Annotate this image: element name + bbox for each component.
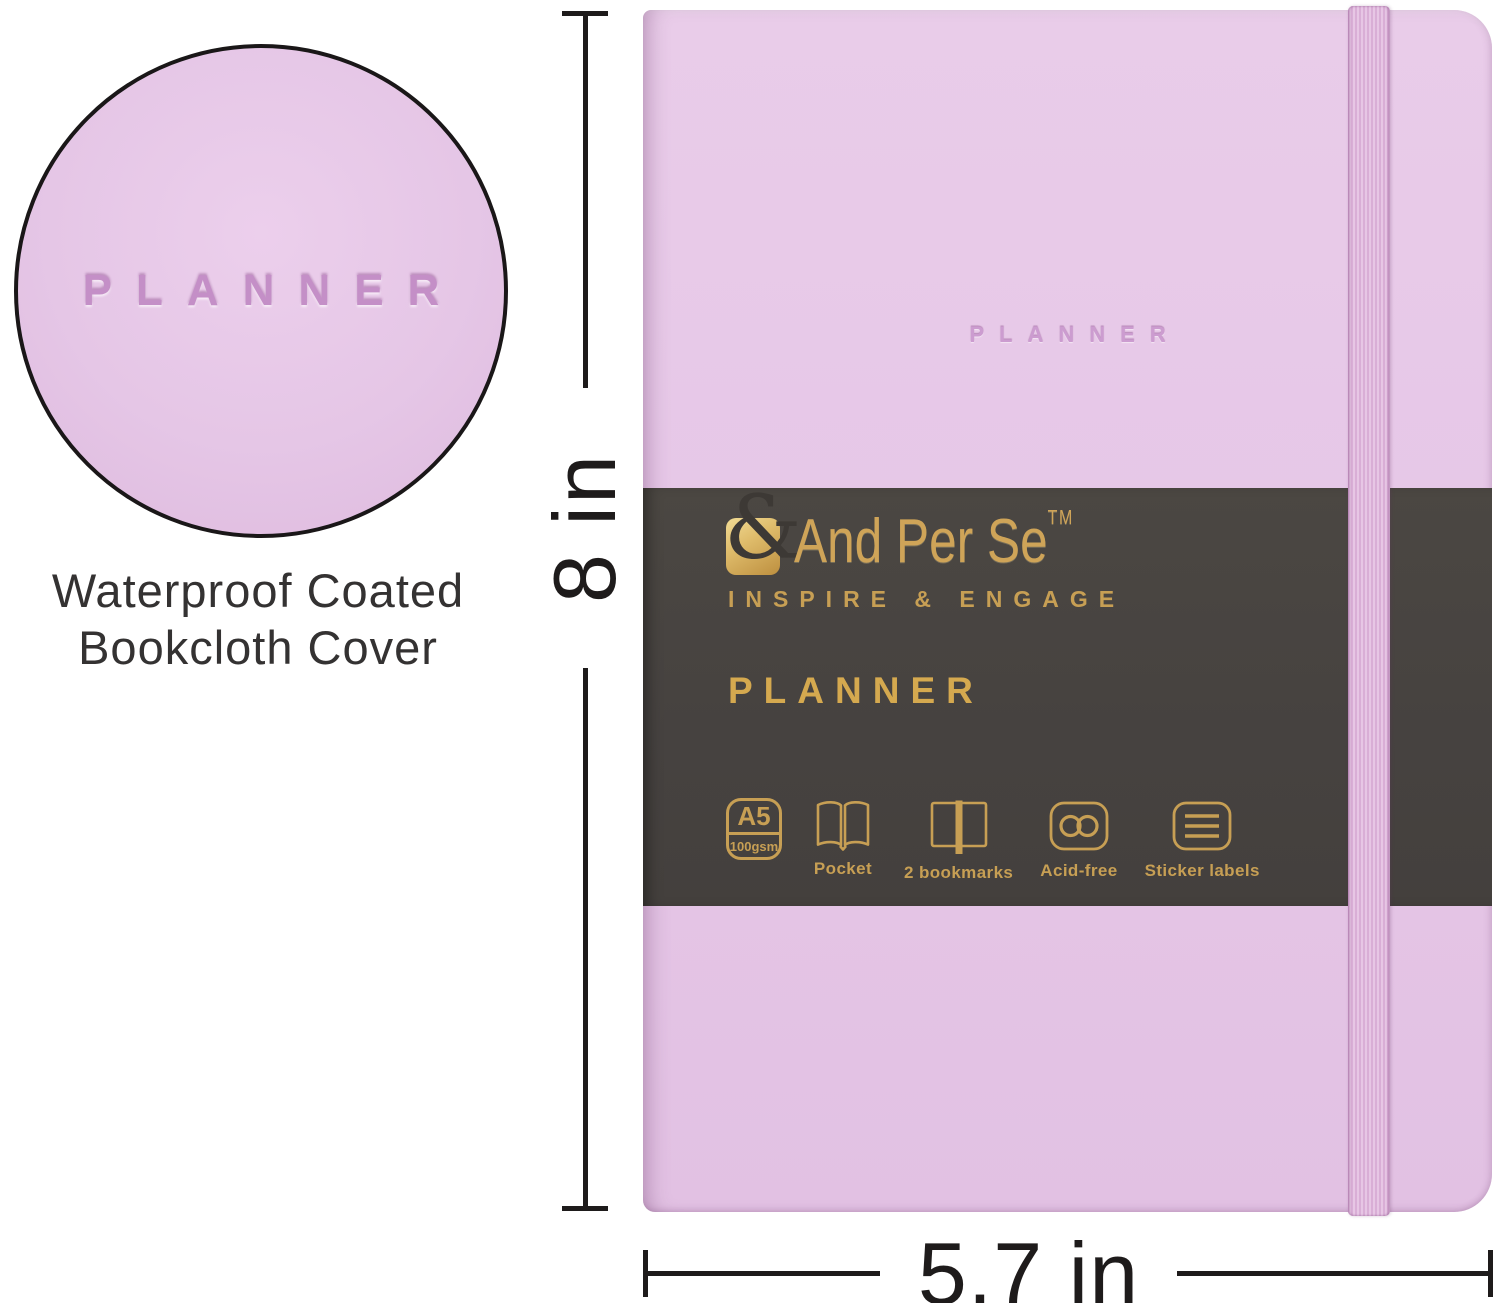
detail-caption-line1: Waterproof Coated bbox=[10, 562, 506, 619]
pocket-icon bbox=[809, 798, 877, 852]
height-dimension-line-lower bbox=[583, 668, 588, 1208]
feature-label-sticker-labels: Sticker labels bbox=[1145, 861, 1260, 881]
feature-pocket: Pocket bbox=[809, 798, 877, 879]
feature-icons-row: A5 100gsm Pocket bbox=[726, 798, 1260, 883]
width-dimension-line-left bbox=[643, 1271, 880, 1276]
width-dimension-line-right bbox=[1177, 1271, 1491, 1276]
bookmarks-icon bbox=[927, 798, 991, 856]
feature-label-pocket: Pocket bbox=[814, 859, 872, 879]
brand-name: And Per SeTM bbox=[794, 506, 1074, 577]
product-infographic: PLANNER Waterproof Coated Bookcloth Cove… bbox=[0, 0, 1500, 1303]
planner-notebook: PLANNER & And Per SeTM INSPIRE & ENGAGE … bbox=[643, 10, 1492, 1212]
cover-detail-zoom-circle: PLANNER bbox=[14, 44, 508, 538]
detail-caption-line2: Bookcloth Cover bbox=[10, 619, 506, 676]
width-dimension-right-cap bbox=[1488, 1250, 1493, 1297]
embossed-planner-text-detail: PLANNER bbox=[59, 266, 464, 316]
product-title: PLANNER bbox=[728, 670, 984, 712]
a5-size-label: A5 bbox=[729, 801, 779, 835]
feature-label-bookmarks: 2 bookmarks bbox=[904, 863, 1013, 883]
width-dimension-label: 5.7 in bbox=[880, 1236, 1177, 1303]
ampersand-logo-icon: & bbox=[724, 484, 802, 572]
feature-label-acid-free: Acid-free bbox=[1040, 861, 1117, 881]
feature-a5: A5 100gsm bbox=[726, 798, 782, 860]
acid-free-icon bbox=[1048, 798, 1110, 854]
sticker-labels-icon bbox=[1171, 798, 1233, 854]
height-dimension-line-upper bbox=[583, 11, 588, 388]
a5-size-badge: A5 100gsm bbox=[726, 798, 782, 860]
feature-bookmarks: 2 bookmarks bbox=[904, 798, 1013, 883]
brand-tagline: INSPIRE & ENGAGE bbox=[728, 586, 1125, 613]
height-dimension-label: 8 in bbox=[528, 388, 642, 668]
feature-sticker-labels: Sticker labels bbox=[1145, 798, 1260, 881]
paper-weight-label: 100gsm bbox=[729, 835, 779, 857]
elastic-band bbox=[1348, 6, 1390, 1216]
detail-caption: Waterproof Coated Bookcloth Cover bbox=[10, 562, 506, 677]
height-dimension-bottom-cap bbox=[562, 1206, 608, 1211]
trademark-symbol: TM bbox=[1048, 507, 1074, 529]
feature-acid-free: Acid-free bbox=[1040, 798, 1117, 881]
